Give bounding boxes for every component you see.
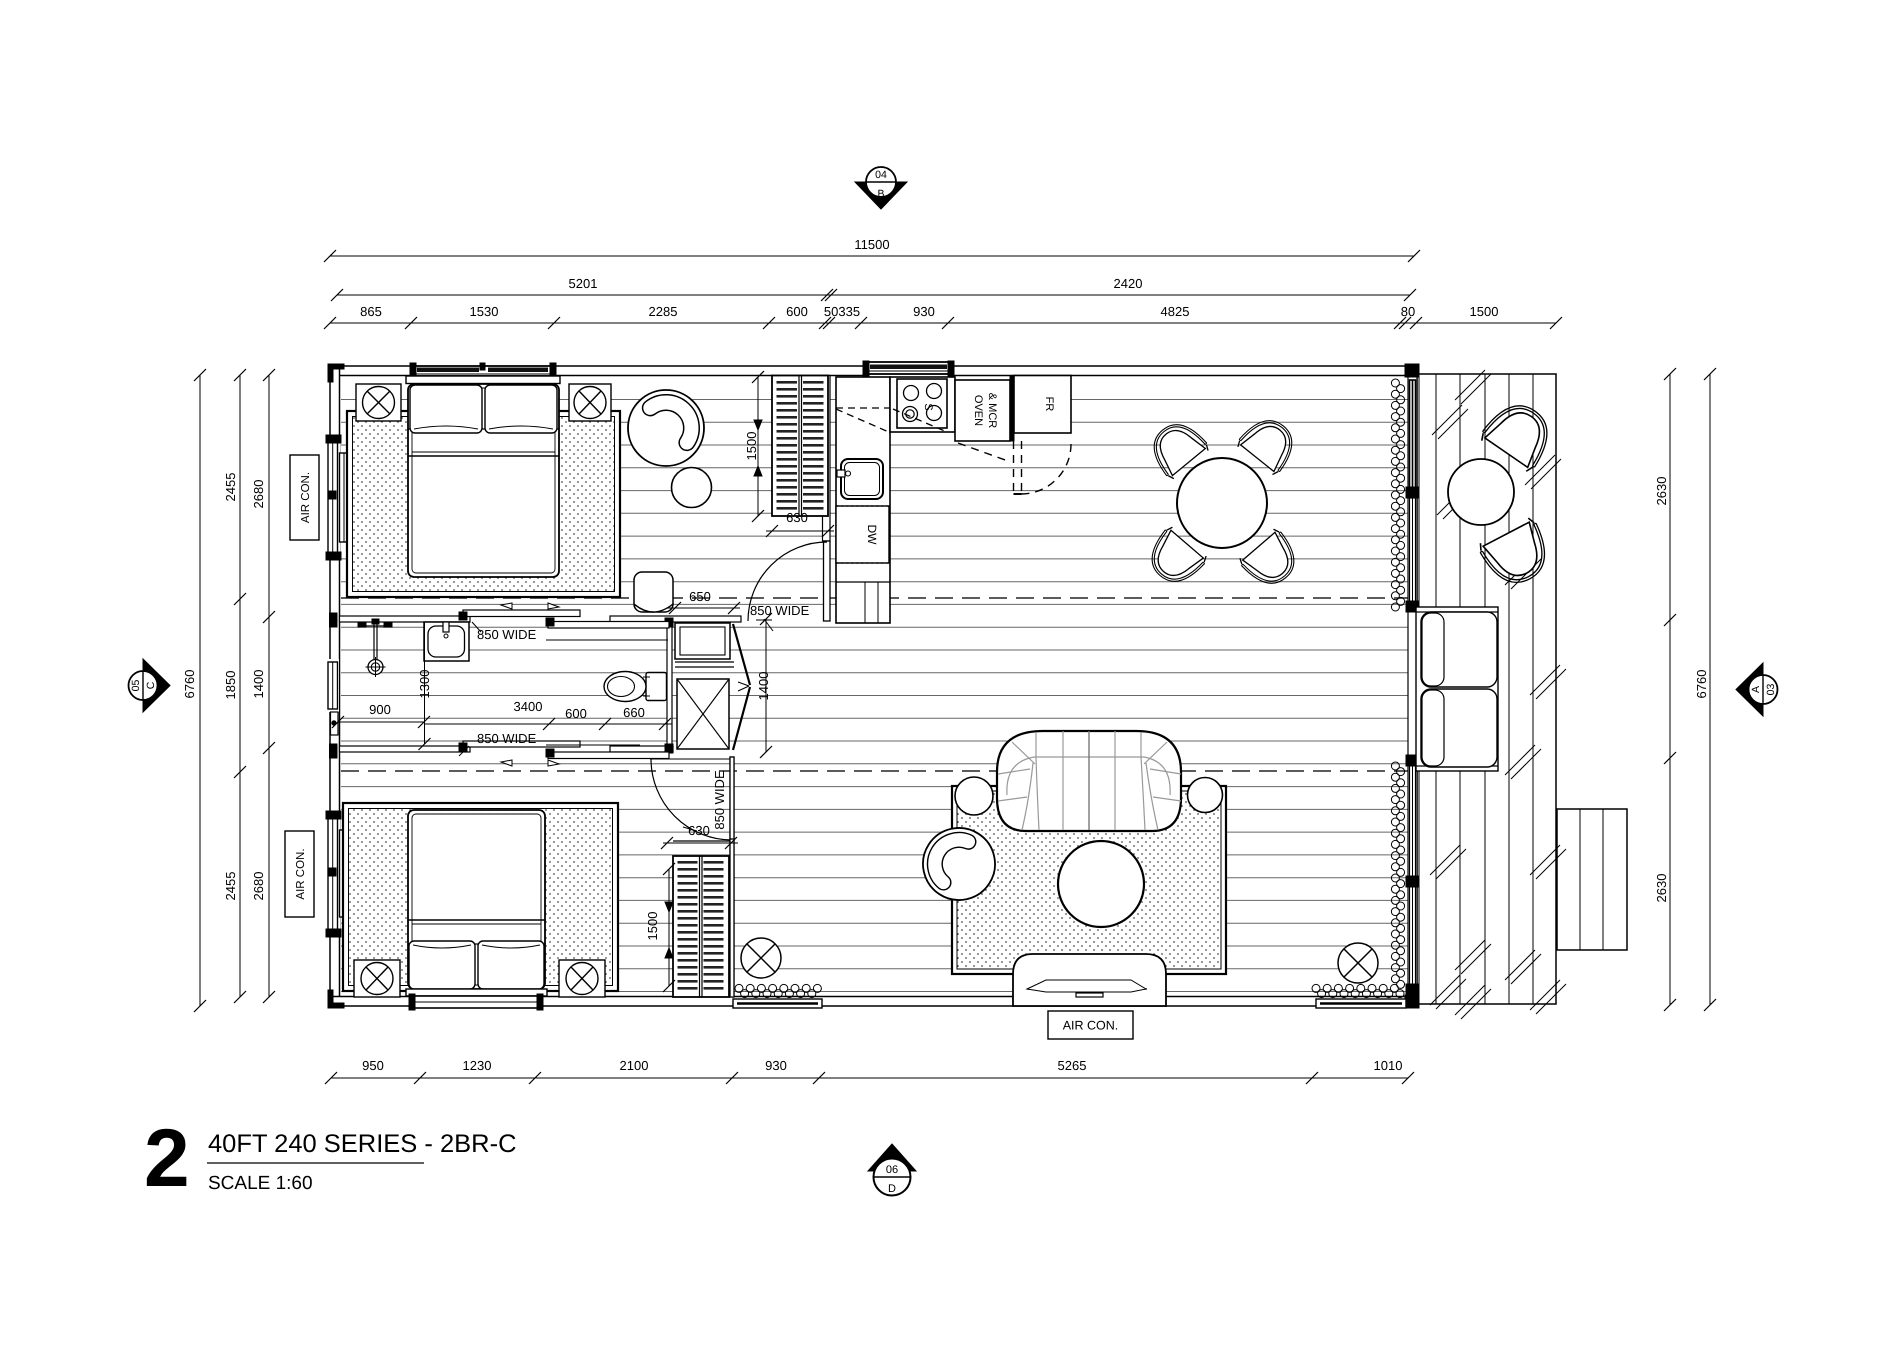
- svg-text:80: 80: [1401, 304, 1415, 319]
- svg-text:C: C: [145, 681, 157, 689]
- svg-text:650: 650: [689, 589, 711, 604]
- svg-text:04: 04: [875, 169, 887, 181]
- svg-text:630: 630: [688, 823, 710, 838]
- svg-text:950: 950: [362, 1058, 384, 1073]
- svg-text:1500: 1500: [744, 432, 759, 461]
- svg-text:850 WIDE: 850 WIDE: [750, 603, 810, 618]
- svg-text:2680: 2680: [251, 480, 266, 509]
- svg-text:5265: 5265: [1058, 1058, 1087, 1073]
- svg-text:1500: 1500: [1470, 304, 1499, 319]
- svg-text:600: 600: [786, 304, 808, 319]
- svg-text:2420: 2420: [1114, 276, 1143, 291]
- svg-text:900: 900: [369, 702, 391, 717]
- svg-text:660: 660: [623, 705, 645, 720]
- svg-text:S: S: [922, 403, 934, 410]
- svg-text:2680: 2680: [251, 872, 266, 901]
- svg-text:50335: 50335: [824, 304, 860, 319]
- svg-text:2285: 2285: [649, 304, 678, 319]
- svg-text:1230: 1230: [463, 1058, 492, 1073]
- svg-text:1530: 1530: [470, 304, 499, 319]
- svg-text:6760: 6760: [1694, 670, 1709, 699]
- svg-text:40FT 240 SERIES - 2BR-C: 40FT 240 SERIES - 2BR-C: [208, 1130, 516, 1158]
- svg-text:1850: 1850: [223, 671, 238, 700]
- svg-text:D: D: [888, 1183, 896, 1195]
- svg-text:2630: 2630: [1654, 477, 1669, 506]
- svg-text:850 WIDE: 850 WIDE: [712, 770, 727, 830]
- svg-text:FR: FR: [1043, 397, 1055, 412]
- svg-text:600: 600: [565, 706, 587, 721]
- svg-text:2455: 2455: [223, 473, 238, 502]
- svg-text:2100: 2100: [620, 1058, 649, 1073]
- svg-text:A: A: [1750, 686, 1762, 693]
- svg-text:1010: 1010: [1374, 1058, 1403, 1073]
- svg-text:2630: 2630: [1654, 874, 1669, 903]
- svg-text:AIR CON.: AIR CON.: [300, 472, 312, 523]
- svg-text:B: B: [877, 188, 884, 200]
- svg-text:850 WIDE: 850 WIDE: [477, 731, 537, 746]
- svg-text:1400: 1400: [756, 672, 771, 701]
- svg-text:OVEN: OVEN: [972, 395, 984, 426]
- svg-text:2: 2: [144, 1113, 190, 1204]
- svg-text:5201: 5201: [569, 276, 598, 291]
- svg-text:& MCR: & MCR: [986, 393, 998, 429]
- svg-text:DW: DW: [865, 525, 879, 546]
- svg-text:2455: 2455: [223, 872, 238, 901]
- svg-text:930: 930: [765, 1058, 787, 1073]
- svg-text:6760: 6760: [182, 670, 197, 699]
- svg-text:865: 865: [360, 304, 382, 319]
- svg-text:03: 03: [1765, 684, 1777, 696]
- svg-text:4825: 4825: [1161, 304, 1190, 319]
- svg-text:SCALE 1:60: SCALE 1:60: [208, 1173, 313, 1194]
- svg-text:05: 05: [130, 680, 142, 692]
- svg-text:1500: 1500: [645, 912, 660, 941]
- svg-text:AIR CON.: AIR CON.: [1063, 1019, 1119, 1033]
- svg-text:11500: 11500: [854, 237, 889, 252]
- svg-text:630: 630: [786, 510, 808, 525]
- svg-text:06: 06: [886, 1164, 898, 1176]
- svg-text:930: 930: [913, 304, 935, 319]
- svg-text:1400: 1400: [251, 670, 266, 699]
- svg-text:AIR CON.: AIR CON.: [295, 848, 307, 899]
- svg-text:850 WIDE: 850 WIDE: [477, 627, 537, 642]
- svg-text:1300: 1300: [417, 670, 432, 699]
- svg-text:3400: 3400: [514, 699, 543, 714]
